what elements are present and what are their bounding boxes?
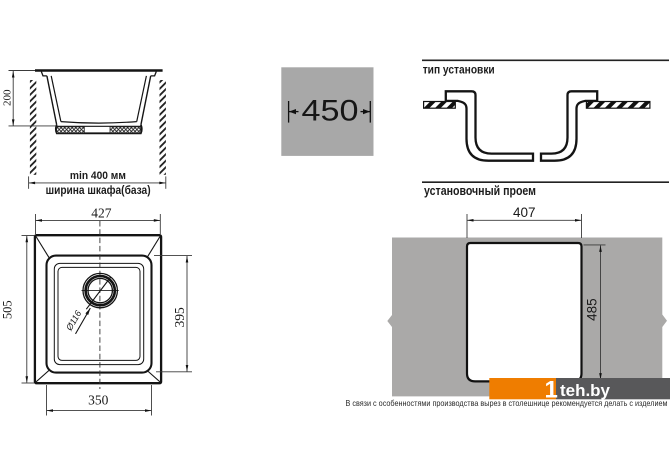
svg-text:350: 350 <box>88 392 109 407</box>
svg-text:485: 485 <box>584 298 599 321</box>
svg-text:В связи с особенностями произв: В связи с особенностями производства выр… <box>346 398 668 408</box>
svg-text:450: 450 <box>302 94 359 127</box>
svg-text:установочный проем: установочный проем <box>424 184 536 198</box>
svg-text:200: 200 <box>2 89 14 106</box>
svg-text:ширина шкафа(база): ширина шкафа(база) <box>46 183 151 197</box>
svg-text:427: 427 <box>91 205 112 220</box>
svg-text:407: 407 <box>513 205 536 220</box>
svg-text:min 400 мм: min 400 мм <box>70 170 126 182</box>
svg-text:тип установки: тип установки <box>423 63 495 77</box>
svg-text:395: 395 <box>172 307 187 328</box>
svg-text:505: 505 <box>1 300 15 319</box>
